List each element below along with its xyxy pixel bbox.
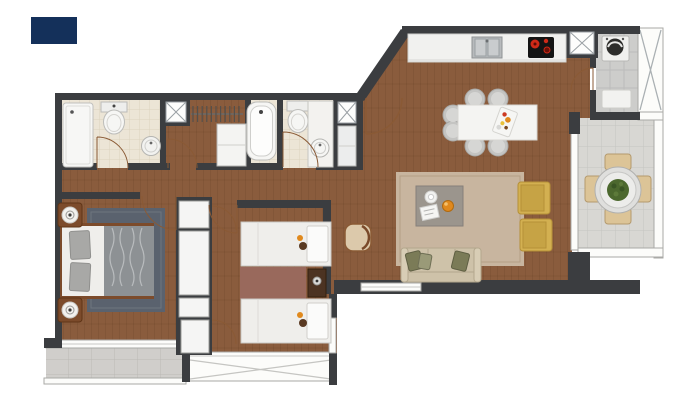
master-pillow-2 bbox=[69, 262, 90, 291]
washbasin-1-tap bbox=[150, 142, 153, 145]
cooktop bbox=[528, 37, 554, 58]
washbasin-2-tap bbox=[319, 144, 322, 147]
toilet-1-button bbox=[113, 105, 116, 108]
sofa bbox=[401, 248, 481, 282]
shower bbox=[63, 103, 93, 167]
bed-2-toy-a bbox=[297, 312, 303, 318]
bed-1-toy-b bbox=[299, 242, 307, 250]
decor-ball bbox=[443, 201, 454, 212]
wardrobe-unit-4 bbox=[181, 320, 209, 353]
floors bbox=[46, 34, 658, 378]
cup bbox=[428, 194, 433, 199]
terrace-sliding-window bbox=[571, 130, 578, 250]
sofa-pillow-2 bbox=[418, 253, 432, 270]
wall-terrace-top-stub bbox=[569, 112, 580, 134]
side-chair-body bbox=[345, 224, 371, 251]
wall-tub-east bbox=[277, 100, 283, 164]
burner-3 bbox=[544, 47, 550, 53]
coffee-table bbox=[416, 186, 463, 226]
wardrobe-unit-2 bbox=[179, 231, 209, 295]
bed-2-pillow bbox=[307, 303, 328, 339]
sink-bowl-1 bbox=[475, 39, 486, 56]
sink-bowl-2 bbox=[488, 39, 499, 56]
washer-knob-2 bbox=[622, 38, 624, 40]
master-pillow-1 bbox=[69, 230, 90, 259]
potted-plant bbox=[607, 179, 629, 201]
stool-2-pad bbox=[491, 92, 505, 106]
master-duvet bbox=[104, 226, 154, 296]
terrace-top-frame bbox=[638, 112, 663, 120]
sink-tap bbox=[486, 40, 489, 43]
bed-2-toy-b bbox=[299, 319, 307, 327]
terrace-bottom-frame bbox=[578, 248, 663, 257]
armchair-1-seat bbox=[521, 185, 544, 211]
kids-rug bbox=[240, 267, 306, 299]
magazine bbox=[420, 204, 439, 220]
bed-1-toy-a bbox=[297, 235, 303, 241]
laundry-mat bbox=[602, 90, 631, 108]
wall-balcony-stub-left bbox=[44, 338, 62, 348]
cooktop-surface bbox=[528, 37, 554, 58]
wall-top-left bbox=[55, 93, 360, 100]
lamp-1-dot bbox=[68, 213, 71, 216]
wall-bed2-outer-b bbox=[329, 353, 337, 385]
bathtub-drain bbox=[259, 110, 263, 114]
armchair-1 bbox=[518, 182, 550, 214]
stool-1-pad bbox=[468, 92, 482, 106]
terrace-right-frame bbox=[654, 112, 663, 258]
lamp-2-dot bbox=[68, 308, 71, 311]
nightstand-2 bbox=[58, 298, 82, 322]
bed-1-pillow bbox=[307, 226, 328, 262]
wardrobe-units bbox=[179, 201, 209, 353]
wardrobe-unit-3 bbox=[179, 298, 209, 317]
wall-hall-seg2 bbox=[128, 163, 170, 170]
stool-5-pad bbox=[468, 139, 482, 153]
washer-knob-1 bbox=[606, 38, 608, 40]
burner-2 bbox=[544, 39, 548, 43]
brand-logo bbox=[31, 17, 77, 44]
plant-leaf-2 bbox=[620, 187, 625, 192]
plant-leaf-4 bbox=[619, 182, 623, 186]
wall-terrace-stub bbox=[568, 252, 590, 282]
nightstand-1 bbox=[58, 203, 82, 227]
plant-leaf-1 bbox=[612, 184, 617, 189]
washbasin-1 bbox=[142, 137, 161, 156]
wall-top-kitchen bbox=[402, 26, 640, 34]
floor-plan-canvas bbox=[0, 0, 697, 405]
wall-master-north bbox=[62, 192, 140, 199]
kids-clock-dot bbox=[316, 280, 319, 283]
balcony-pavers bbox=[46, 348, 184, 378]
wall-bed2-north bbox=[237, 200, 331, 208]
shower-drain bbox=[70, 110, 74, 114]
plant-leaf-3 bbox=[614, 192, 619, 197]
kitchen bbox=[408, 34, 566, 62]
armchair-2 bbox=[520, 219, 552, 251]
washbasin-2 bbox=[311, 139, 329, 157]
balcony-outer-frame bbox=[44, 378, 186, 384]
side-chair bbox=[345, 224, 371, 251]
armchair-2-seat bbox=[523, 222, 546, 248]
wardrobe-unit-1 bbox=[179, 201, 209, 228]
decor-ball-highlight bbox=[444, 202, 448, 206]
burner-1-center bbox=[534, 43, 537, 46]
stool-6-pad bbox=[491, 139, 505, 153]
sofa-arm-right bbox=[474, 248, 481, 282]
wall-laundry-south bbox=[590, 112, 640, 120]
kitchen-sink bbox=[472, 37, 502, 58]
